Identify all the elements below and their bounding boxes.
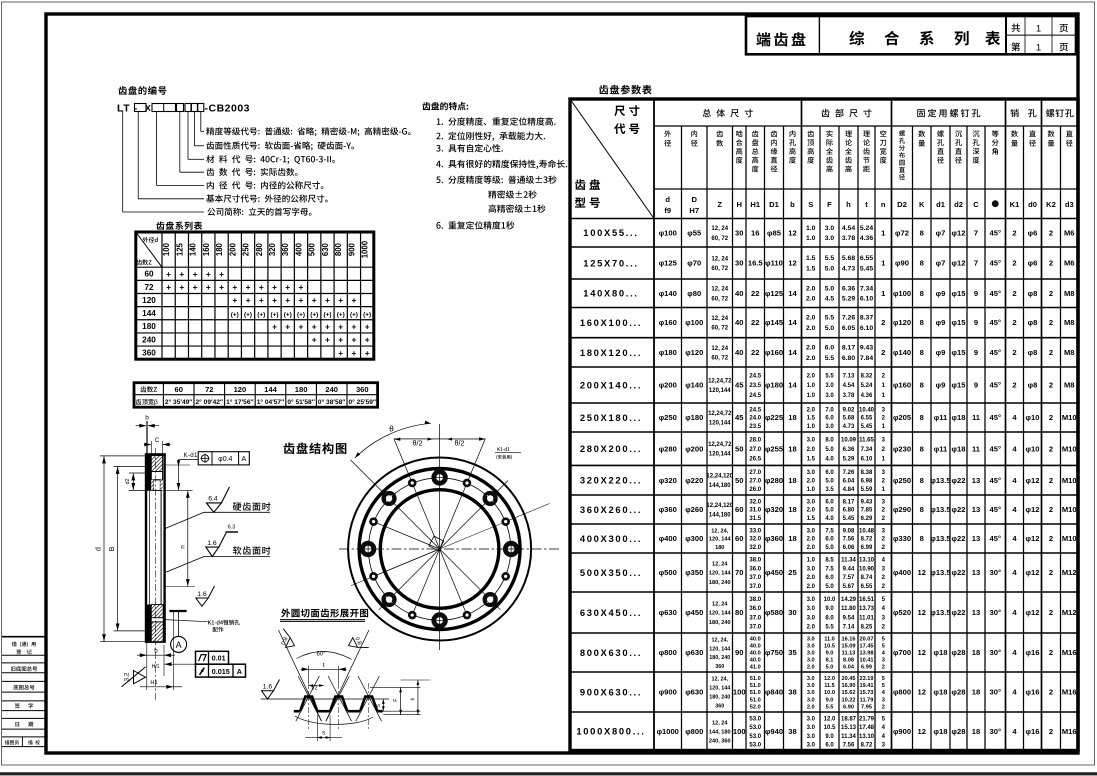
svg-text:(+): (+) (231, 311, 239, 318)
svg-text:(+): (+) (244, 311, 252, 318)
svg-text:+: + (325, 321, 330, 331)
svg-text:+: + (259, 295, 264, 305)
svg-text:φ630: φ630 (685, 648, 703, 657)
svg-text:12,24,72: 12,24,72 (708, 378, 732, 384)
svg-text:2: 2 (1049, 476, 1053, 485)
svg-text:12: 12 (788, 228, 796, 237)
svg-text:7.95: 7.95 (861, 705, 872, 711)
svg-text:+: + (299, 321, 304, 331)
svg-text:7: 7 (974, 259, 978, 268)
svg-text:125X70...: 125X70... (583, 257, 638, 268)
svg-text:45: 45 (735, 413, 744, 422)
svg-text:5.0: 5.0 (825, 325, 835, 332)
svg-text:F: F (827, 200, 832, 209)
svg-text:0.01: 0.01 (212, 654, 226, 663)
svg-text:180: 180 (142, 322, 156, 331)
svg-text:60, 72: 60, 72 (711, 326, 728, 332)
svg-text:φ12: φ12 (1026, 476, 1040, 485)
svg-text:6.36: 6.36 (842, 285, 855, 292)
svg-text:33.0: 33.0 (749, 528, 761, 534)
svg-text:φ160: φ160 (893, 381, 911, 390)
svg-text:14: 14 (788, 348, 797, 357)
svg-text:200: 200 (228, 242, 237, 256)
svg-text:2: 2 (1049, 727, 1053, 736)
svg-text:+: + (338, 335, 343, 345)
svg-text:800: 800 (334, 242, 343, 256)
svg-text:φ13.5: φ13.5 (930, 568, 951, 577)
svg-text:6.55: 6.55 (861, 584, 873, 590)
svg-text:D: D (692, 195, 698, 204)
svg-text:50: 50 (735, 444, 743, 453)
svg-text:14: 14 (788, 381, 797, 390)
svg-text:+: + (312, 295, 317, 305)
svg-text:1.6: 1.6 (197, 591, 207, 598)
svg-text:F: F (393, 698, 399, 701)
svg-text:5.0: 5.0 (826, 665, 834, 671)
svg-text:φ280: φ280 (765, 476, 783, 485)
svg-text:6.10: 6.10 (860, 325, 873, 332)
svg-text:23.5: 23.5 (749, 383, 761, 389)
svg-text:φ28: φ28 (952, 727, 966, 736)
svg-text:M8: M8 (1064, 289, 1075, 298)
svg-text:φ320: φ320 (659, 476, 677, 485)
svg-text:7.13: 7.13 (843, 374, 855, 380)
svg-text:+: + (351, 321, 356, 331)
svg-text:120, 144: 120, 144 (709, 686, 730, 692)
svg-text:8.72: 8.72 (861, 537, 873, 543)
svg-text:320: 320 (268, 242, 277, 256)
svg-text:3.78: 3.78 (842, 235, 855, 242)
svg-text:φ18: φ18 (934, 648, 948, 657)
svg-text:7.0: 7.0 (825, 407, 834, 413)
svg-text:φ120: φ120 (893, 318, 911, 327)
svg-text:12,24,72: 12,24,72 (708, 411, 732, 417)
svg-text:37.0: 37.0 (749, 625, 761, 631)
svg-text:5.5: 5.5 (825, 315, 835, 322)
svg-text:2.0: 2.0 (806, 296, 816, 303)
svg-text:+: + (179, 269, 184, 279)
svg-text:+: + (351, 348, 356, 358)
svg-text:5.24: 5.24 (860, 225, 873, 232)
svg-text:φ0.4: φ0.4 (218, 456, 232, 463)
svg-text:12: 12 (918, 648, 926, 657)
svg-text:180: 180 (295, 385, 308, 394)
svg-text:45°: 45° (990, 228, 1001, 237)
svg-text:18: 18 (788, 505, 796, 514)
svg-text:K1: K1 (1010, 200, 1020, 209)
svg-text:+: + (299, 295, 304, 305)
svg-text:φ220: φ220 (685, 476, 703, 485)
svg-text:140X80...: 140X80... (583, 288, 638, 299)
svg-text:120,144: 120,144 (709, 452, 731, 458)
svg-text:+: + (166, 269, 171, 279)
svg-text:180X120...: 180X120... (580, 347, 642, 358)
svg-text:d2: d2 (954, 200, 963, 209)
svg-text:φ125: φ125 (765, 289, 784, 298)
svg-text:6.0: 6.0 (825, 416, 834, 422)
svg-text:21.79: 21.79 (859, 717, 875, 723)
svg-text:8.25: 8.25 (861, 625, 873, 631)
svg-text:4.73: 4.73 (842, 265, 855, 272)
svg-text:6.0: 6.0 (825, 344, 835, 351)
svg-text:3.0: 3.0 (807, 637, 815, 643)
svg-text:2: 2 (1049, 444, 1053, 453)
svg-text:(+): (+) (350, 311, 358, 318)
svg-text:45°: 45° (990, 348, 1001, 357)
svg-text:8.5: 8.5 (825, 558, 834, 564)
svg-text:M10: M10 (1062, 476, 1077, 485)
svg-text:8.17: 8.17 (843, 499, 855, 505)
svg-text:2: 2 (1049, 318, 1053, 327)
svg-text:φ250: φ250 (659, 413, 677, 422)
svg-text:51.0: 51.0 (750, 697, 761, 703)
svg-text:φ9: φ9 (936, 318, 946, 327)
svg-text:2: 2 (1012, 381, 1016, 390)
svg-text:5.59: 5.59 (861, 487, 873, 493)
svg-text:3.5: 3.5 (825, 487, 834, 493)
svg-text:3.0: 3.0 (807, 528, 816, 534)
svg-text:φ100: φ100 (893, 289, 911, 298)
svg-text:M16: M16 (1062, 688, 1077, 697)
svg-text:3.0: 3.0 (807, 499, 816, 505)
svg-text:120: 120 (234, 385, 247, 394)
svg-text:2.0: 2.0 (807, 407, 816, 413)
svg-text:1.5: 1.5 (806, 265, 816, 272)
svg-text:2: 2 (1049, 608, 1053, 617)
svg-text:3.0: 3.0 (825, 393, 834, 399)
svg-text:φ700: φ700 (893, 648, 911, 657)
svg-text:φ8: φ8 (1028, 381, 1038, 390)
svg-text:30: 30 (788, 608, 796, 617)
svg-text:φ100: φ100 (659, 228, 677, 237)
svg-text:12, 24,: 12, 24, (711, 528, 729, 534)
svg-text:2: 2 (1049, 289, 1053, 298)
svg-text:φ500: φ500 (659, 568, 677, 577)
svg-text:60: 60 (735, 505, 743, 514)
svg-text:24.5: 24.5 (749, 393, 761, 399)
svg-text:φ12: φ12 (1026, 568, 1040, 577)
svg-text:2: 2 (1049, 688, 1053, 697)
svg-text:+: + (166, 282, 171, 292)
svg-text:2: 2 (882, 665, 885, 671)
svg-text:2.0: 2.0 (806, 355, 816, 362)
svg-text:n: n (179, 545, 186, 549)
svg-text:8.1: 8.1 (826, 658, 834, 664)
svg-text:1.0: 1.0 (807, 383, 816, 389)
svg-text:1: 1 (1036, 24, 1041, 35)
svg-text:φ9: φ9 (936, 348, 946, 357)
svg-text:3.0: 3.0 (807, 734, 816, 740)
svg-text:5.5: 5.5 (825, 374, 834, 380)
svg-text:80: 80 (735, 608, 743, 617)
svg-text:12.0: 12.0 (824, 676, 835, 682)
svg-text:5.0: 5.0 (825, 508, 834, 514)
svg-text:6.0: 6.0 (825, 499, 834, 505)
svg-text:6.55: 6.55 (861, 416, 873, 422)
svg-text:φ9: φ9 (936, 381, 946, 390)
svg-text:500: 500 (308, 242, 317, 256)
svg-text:φ22: φ22 (952, 505, 966, 514)
svg-text:11.65: 11.65 (859, 437, 874, 443)
svg-text:27.0: 27.0 (749, 470, 761, 476)
svg-text:(+): (+) (363, 311, 371, 318)
svg-text:+: + (338, 295, 343, 305)
svg-text:3.0: 3.0 (807, 697, 815, 703)
svg-text:B: B (109, 546, 116, 551)
svg-text:3.0: 3.0 (825, 383, 834, 389)
svg-text:H: H (737, 200, 742, 209)
svg-text:360: 360 (281, 242, 290, 256)
svg-text:13.73: 13.73 (859, 606, 875, 612)
svg-text:8.38: 8.38 (861, 470, 873, 476)
svg-text:b: b (790, 200, 795, 209)
svg-text:37.0: 37.0 (749, 575, 761, 581)
svg-text:H/1: H/1 (152, 664, 160, 670)
svg-text:+: + (232, 282, 237, 292)
svg-text:9.08: 9.08 (843, 528, 855, 534)
svg-text:φ230: φ230 (893, 444, 911, 453)
svg-text:3.2: 3.2 (124, 672, 131, 681)
svg-text:M10: M10 (1062, 413, 1077, 422)
svg-text:3.78: 3.78 (843, 393, 855, 399)
svg-text:φ160: φ160 (659, 318, 677, 327)
svg-text:4.84: 4.84 (843, 487, 855, 493)
svg-text:2: 2 (1012, 318, 1016, 327)
svg-text:φ12: φ12 (952, 228, 966, 237)
svg-text:1.5: 1.5 (807, 457, 816, 463)
svg-text:+: + (193, 282, 198, 292)
svg-text:3.0: 3.0 (807, 690, 815, 696)
svg-text:18: 18 (788, 413, 796, 422)
svg-text:φ940: φ940 (765, 727, 783, 736)
svg-text:30°: 30° (990, 568, 1001, 577)
svg-text:2: 2 (1049, 413, 1053, 422)
svg-text:16: 16 (751, 228, 759, 237)
svg-text:8.72: 8.72 (861, 742, 873, 748)
svg-text:3.0: 3.0 (807, 676, 815, 682)
svg-text:11.34: 11.34 (841, 734, 856, 740)
svg-text:φ250: φ250 (893, 476, 911, 485)
svg-text:2: 2 (1049, 505, 1053, 514)
svg-text:φ12: φ12 (1026, 534, 1040, 543)
svg-text:60: 60 (144, 270, 154, 279)
svg-text:120, 144: 120, 144 (709, 646, 730, 652)
svg-text:2.0: 2.0 (806, 285, 816, 292)
svg-text:5.24: 5.24 (861, 383, 873, 389)
svg-text:50: 50 (735, 476, 743, 485)
svg-text:2: 2 (1012, 289, 1016, 298)
svg-text:M6: M6 (1064, 259, 1075, 268)
svg-text:2° 09′42″: 2° 09′42″ (196, 398, 224, 406)
svg-text:2.0: 2.0 (807, 705, 815, 711)
svg-text:φ12: φ12 (1026, 608, 1040, 617)
svg-text:8.32: 8.32 (861, 374, 873, 380)
svg-text:180: 180 (715, 545, 724, 551)
svg-text:18.87: 18.87 (841, 717, 857, 723)
svg-text:13: 13 (972, 476, 980, 485)
svg-text:0° 51′58″: 0° 51′58″ (287, 398, 315, 406)
svg-text:5.29: 5.29 (842, 296, 855, 303)
svg-text:16.51: 16.51 (859, 597, 875, 603)
svg-text:+: + (351, 295, 356, 305)
svg-text:12.0: 12.0 (824, 717, 836, 723)
svg-text:φ280: φ280 (659, 444, 677, 453)
svg-text:b: b (154, 648, 158, 655)
svg-text:φ145: φ145 (765, 318, 784, 327)
svg-text:51.0: 51.0 (750, 676, 761, 682)
svg-text:φ260: φ260 (685, 505, 703, 514)
svg-text:6.04: 6.04 (843, 665, 855, 671)
svg-text:4.36: 4.36 (860, 235, 873, 242)
svg-text:1.0: 1.0 (806, 235, 816, 242)
svg-text:φ7: φ7 (936, 228, 946, 237)
svg-text:h: h (411, 697, 417, 700)
svg-text:630X450...: 630X450... (580, 607, 642, 618)
svg-text:2: 2 (1049, 348, 1053, 357)
svg-text:φ80: φ80 (687, 289, 701, 298)
svg-text:40.0: 40.0 (750, 644, 761, 650)
svg-text:7: 7 (974, 228, 978, 237)
svg-text:6.3: 6.3 (228, 525, 236, 531)
svg-text:8: 8 (920, 381, 924, 390)
svg-text:θ/2: θ/2 (455, 438, 465, 447)
svg-text:5.45: 5.45 (861, 424, 873, 430)
svg-text:13.98: 13.98 (860, 651, 874, 657)
svg-text:51.0: 51.0 (750, 683, 761, 689)
svg-text:18: 18 (788, 476, 796, 485)
svg-text:φ12: φ12 (1026, 505, 1040, 514)
svg-text:10.0: 10.0 (824, 597, 836, 603)
svg-text:12: 12 (918, 727, 926, 736)
svg-text:9: 9 (974, 381, 978, 390)
svg-text:+: + (246, 295, 251, 305)
svg-text:+: + (338, 321, 343, 331)
svg-text:5.0: 5.0 (825, 478, 834, 484)
svg-text:φ140: φ140 (893, 348, 911, 357)
svg-text:16.5: 16.5 (748, 259, 764, 268)
svg-text:φ200: φ200 (659, 381, 677, 390)
svg-text:30°: 30° (990, 608, 1001, 617)
svg-text:2.0: 2.0 (807, 374, 816, 380)
svg-text:θ: θ (389, 425, 394, 434)
svg-text:(+): (+) (297, 311, 305, 318)
svg-text:φ800: φ800 (893, 688, 911, 697)
svg-text:13: 13 (972, 534, 980, 543)
svg-text:φ55: φ55 (687, 228, 702, 237)
svg-text:K-d1: K-d1 (184, 452, 199, 459)
svg-text:1.0: 1.0 (807, 424, 816, 430)
svg-text:φ16: φ16 (1026, 648, 1040, 657)
svg-text:40: 40 (735, 318, 743, 327)
svg-text:φ7: φ7 (936, 259, 946, 268)
svg-text:60, 72: 60, 72 (711, 236, 728, 242)
svg-text:S: S (808, 200, 813, 209)
svg-text:9.43: 9.43 (861, 499, 873, 505)
svg-text:φ28: φ28 (952, 688, 966, 697)
svg-text:φ330: φ330 (893, 534, 911, 543)
svg-text:φ630: φ630 (659, 608, 677, 617)
svg-text:630: 630 (321, 242, 330, 256)
svg-text:φ205: φ205 (893, 413, 912, 422)
svg-text:10.90: 10.90 (859, 566, 875, 572)
svg-text:100: 100 (733, 688, 746, 697)
svg-text:8.17: 8.17 (842, 344, 855, 351)
svg-text:4.5: 4.5 (825, 296, 835, 303)
svg-text:72: 72 (144, 283, 154, 292)
svg-text:+: + (285, 282, 290, 292)
svg-text:φ13.5: φ13.5 (930, 534, 951, 543)
svg-text:M8: M8 (1064, 381, 1075, 390)
svg-text:32.0: 32.0 (749, 499, 761, 505)
svg-text:45°: 45° (990, 534, 1001, 543)
svg-text:1.5: 1.5 (807, 416, 816, 422)
svg-text:2: 2 (882, 705, 885, 711)
svg-text:20.07: 20.07 (860, 637, 874, 643)
svg-text:K: K (919, 200, 925, 209)
svg-text:1.0: 1.0 (806, 225, 816, 232)
svg-text:41.0: 41.0 (750, 665, 761, 671)
svg-text:13.10: 13.10 (859, 734, 875, 740)
svg-text:6.99: 6.99 (861, 545, 873, 551)
svg-text:13: 13 (972, 608, 980, 617)
svg-text:5: 5 (882, 644, 885, 650)
svg-text:12: 12 (918, 568, 926, 577)
svg-text:n: n (881, 200, 886, 209)
svg-text:30°: 30° (990, 727, 1001, 736)
svg-text:+: + (193, 269, 198, 279)
svg-text:3: 3 (882, 697, 885, 703)
svg-text:23.5: 23.5 (749, 424, 761, 430)
svg-text:d1: d1 (936, 200, 946, 209)
svg-text:240, 360: 240, 360 (709, 739, 731, 745)
svg-text:8: 8 (920, 534, 924, 543)
svg-text:5.45: 5.45 (843, 516, 855, 522)
svg-text:17.45: 17.45 (860, 644, 874, 650)
svg-text:16.90: 16.90 (842, 683, 856, 689)
svg-text:1° 17′56″: 1° 17′56″ (226, 398, 254, 406)
svg-text:3.0: 3.0 (807, 717, 816, 723)
svg-text:14.29: 14.29 (841, 597, 857, 603)
svg-text:5.5: 5.5 (825, 355, 835, 362)
svg-text:7.56: 7.56 (843, 537, 855, 543)
svg-text:12, 24: 12, 24 (712, 602, 728, 608)
svg-text:1.6: 1.6 (207, 540, 217, 547)
svg-text:3.0: 3.0 (807, 725, 816, 731)
svg-text:280X200...: 280X200... (580, 443, 642, 454)
svg-text:φ11: φ11 (934, 444, 948, 453)
svg-text:11.79: 11.79 (860, 697, 874, 703)
svg-text:φ200: φ200 (685, 444, 703, 453)
svg-text:φ18: φ18 (952, 413, 966, 422)
svg-text:7.57: 7.57 (843, 575, 855, 581)
svg-text:3.0: 3.0 (807, 683, 815, 689)
svg-text:160X100...: 160X100... (580, 317, 642, 328)
svg-text:5: 5 (882, 637, 885, 643)
svg-text:φ28: φ28 (952, 648, 966, 657)
svg-text:15.13: 15.13 (841, 725, 857, 731)
svg-text:14: 14 (788, 318, 797, 327)
svg-text:12,24,120: 12,24,120 (706, 474, 733, 480)
svg-text:9.43: 9.43 (860, 344, 873, 351)
svg-text:120: 120 (142, 296, 156, 305)
svg-text:8: 8 (920, 505, 924, 514)
svg-text:1.5: 1.5 (806, 255, 816, 262)
svg-text:100: 100 (733, 727, 746, 736)
svg-text:φ520: φ520 (893, 608, 911, 617)
svg-text:45°: 45° (990, 259, 1001, 268)
svg-text:180, 240: 180, 240 (709, 655, 730, 661)
svg-text:22: 22 (751, 289, 759, 298)
